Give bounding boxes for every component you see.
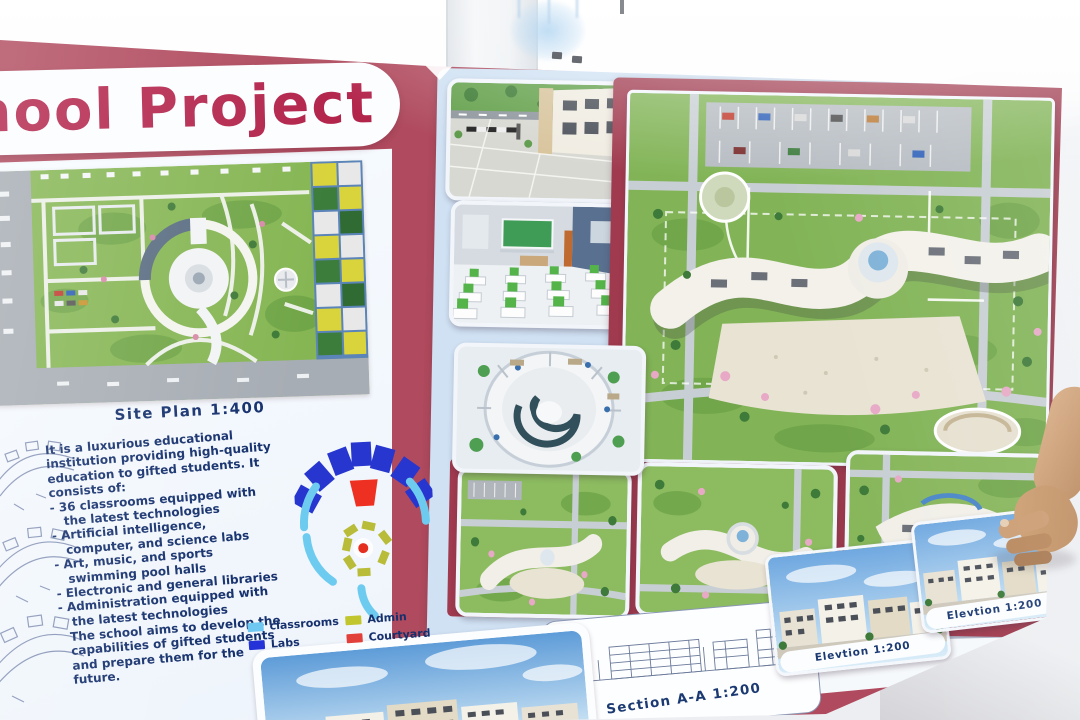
board-clip-icon (572, 56, 582, 64)
presentation-board: School Project (0, 0, 1080, 720)
chandelier-blur (496, 0, 600, 62)
courtyard-swatch-icon (346, 633, 363, 643)
admin-swatch-icon (345, 615, 362, 625)
legend-label: Labs (270, 636, 300, 651)
board-clip-icon (552, 52, 562, 60)
photo-scene: School Project (0, 0, 1080, 720)
classrooms-swatch-icon (247, 622, 264, 632)
concept-diagram (291, 425, 439, 624)
main-aerial-render (620, 90, 1055, 470)
fingernail (1000, 519, 1009, 527)
pointing-hand (1000, 400, 1080, 590)
title-banner: School Project (0, 61, 401, 158)
aerial-thumb-1-frame (447, 458, 632, 619)
legend-label: Admin (367, 610, 407, 626)
poster-title: School Project (0, 61, 401, 158)
spiral-atrium-render (452, 342, 646, 476)
labs-swatch-icon (249, 640, 266, 650)
site-plan-image (0, 160, 370, 406)
window-frame-line (620, 0, 624, 14)
aerial-thumb-1 (455, 466, 632, 619)
entrance-render (445, 78, 639, 204)
